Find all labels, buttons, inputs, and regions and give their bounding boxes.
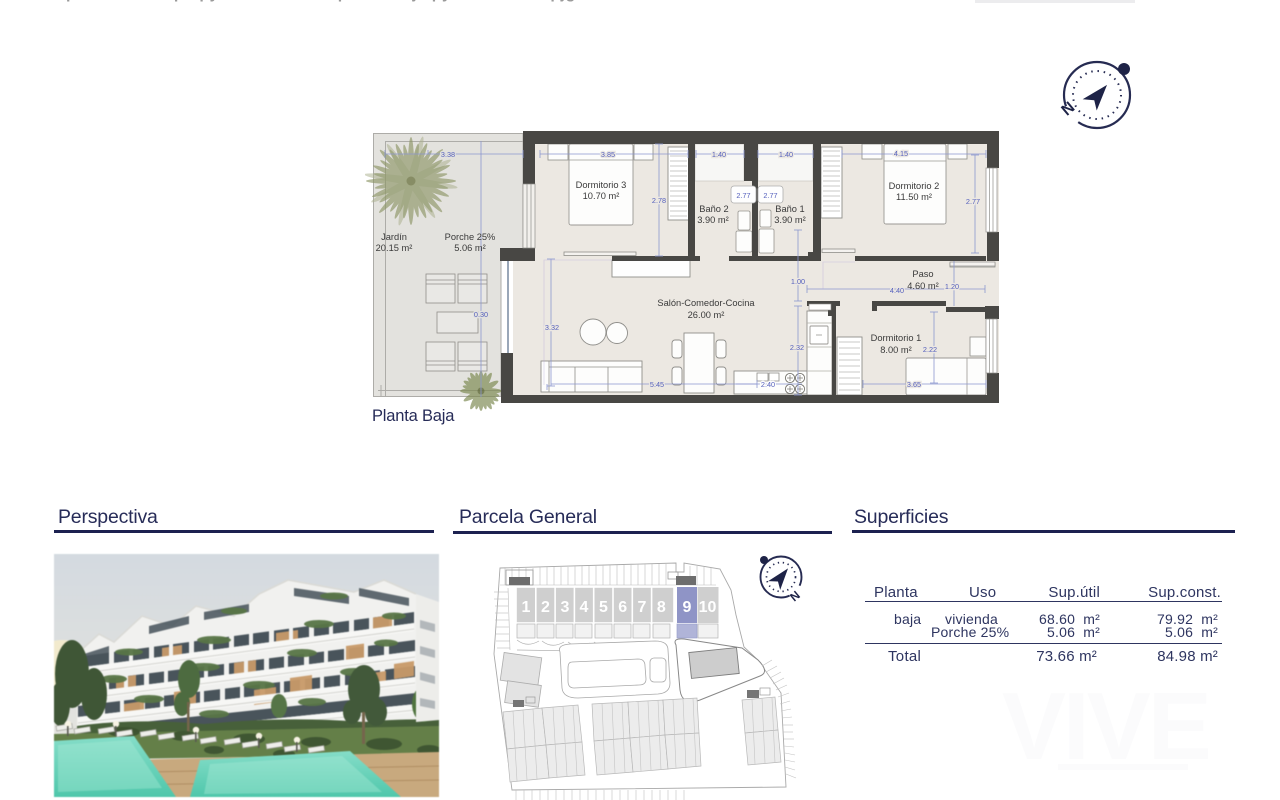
svg-text:3.32: 3.32: [545, 323, 559, 332]
svg-text:3.65: 3.65: [907, 380, 921, 389]
svg-text:Dormitorio 3: Dormitorio 3: [576, 180, 627, 190]
svg-text:2.77: 2.77: [736, 191, 750, 200]
svg-text:7: 7: [638, 599, 647, 616]
svg-text:1.00: 1.00: [791, 277, 805, 286]
svg-text:Baño 1: Baño 1: [775, 204, 804, 214]
svg-text:3.38: 3.38: [441, 150, 455, 159]
svg-text:1: 1: [522, 599, 531, 616]
svg-text:5.06 m²: 5.06 m²: [454, 243, 486, 253]
svg-text:10: 10: [699, 599, 717, 616]
svg-text:5.45: 5.45: [650, 380, 664, 389]
svg-text:10.70 m²: 10.70 m²: [583, 191, 620, 201]
svg-text:2.22: 2.22: [923, 345, 937, 354]
svg-text:Dormitorio 1: Dormitorio 1: [871, 333, 922, 343]
svg-text:N: N: [787, 588, 803, 604]
svg-text:6: 6: [618, 599, 627, 616]
svg-text:4.40: 4.40: [890, 286, 904, 295]
svg-text:4: 4: [580, 599, 589, 616]
svg-text:Jardín: Jardín: [381, 232, 407, 242]
svg-text:2: 2: [541, 599, 550, 616]
svg-text:3.90 m²: 3.90 m²: [697, 215, 729, 225]
svg-text:0.30: 0.30: [474, 310, 488, 319]
svg-text:3.85: 3.85: [601, 150, 615, 159]
svg-text:1.40: 1.40: [779, 150, 793, 159]
svg-text:5: 5: [599, 599, 608, 616]
svg-text:3: 3: [561, 599, 570, 616]
svg-text:20.15 m²: 20.15 m²: [376, 243, 413, 253]
svg-text:4.60 m²: 4.60 m²: [907, 281, 939, 291]
svg-text:8: 8: [657, 599, 666, 616]
svg-text:1.40: 1.40: [712, 150, 726, 159]
svg-text:4.15: 4.15: [894, 149, 908, 158]
svg-text:3.90 m²: 3.90 m²: [774, 215, 806, 225]
svg-text:11.50 m²: 11.50 m²: [896, 192, 932, 202]
svg-text:26.00 m²: 26.00 m²: [688, 310, 725, 320]
svg-text:9: 9: [683, 599, 692, 616]
svg-text:2.40: 2.40: [761, 380, 775, 389]
svg-text:8.00 m²: 8.00 m²: [880, 345, 912, 355]
svg-text:2.77: 2.77: [966, 197, 980, 206]
svg-text:Paso: Paso: [912, 269, 933, 279]
svg-text:Porche 25%: Porche 25%: [445, 232, 496, 242]
svg-text:2.78: 2.78: [652, 196, 666, 205]
svg-text:Salón-Comedor-Cocina: Salón-Comedor-Cocina: [657, 298, 755, 308]
svg-text:Dormitorio 2: Dormitorio 2: [889, 181, 940, 191]
svg-text:Baño 2: Baño 2: [699, 204, 728, 214]
svg-text:N: N: [1058, 99, 1078, 119]
svg-text:1.20: 1.20: [945, 282, 959, 291]
svg-text:2.77: 2.77: [763, 191, 777, 200]
svg-text:2.32: 2.32: [790, 343, 804, 352]
